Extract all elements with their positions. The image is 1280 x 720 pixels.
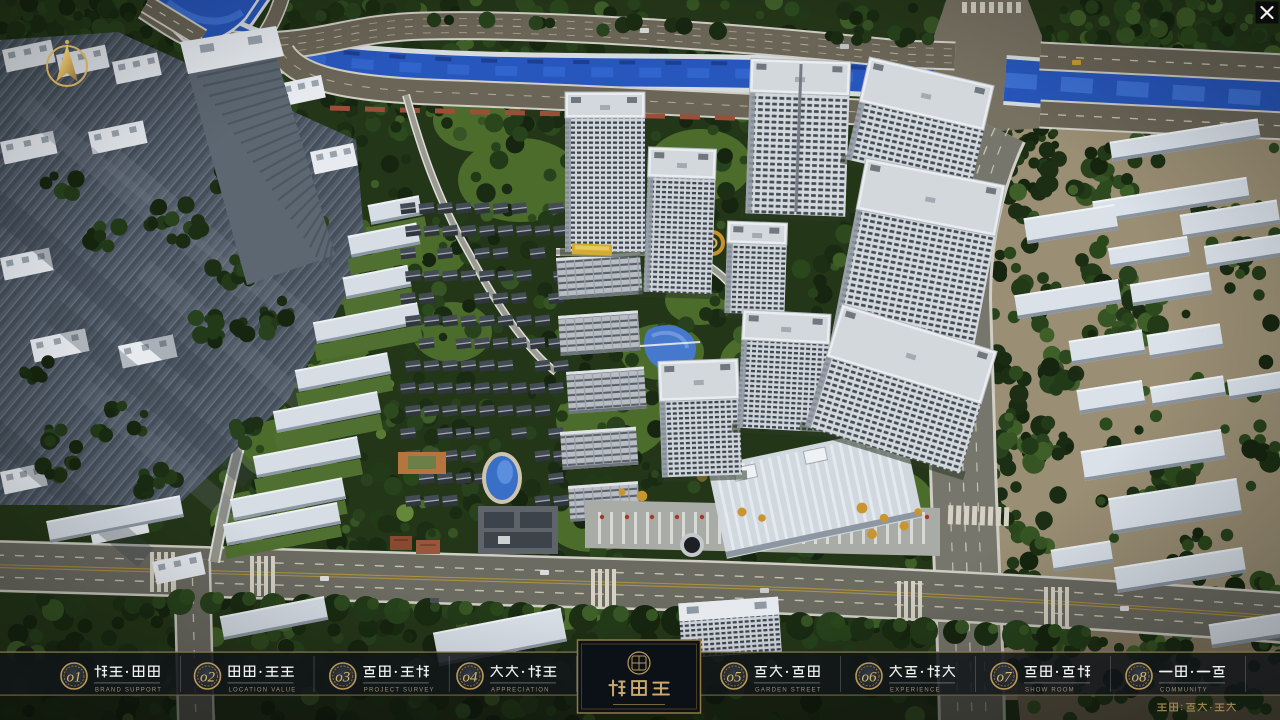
svg-text:BRAND SUPPORT: BRAND SUPPORT bbox=[95, 688, 162, 694]
svg-text:o3: o3 bbox=[335, 670, 350, 686]
svg-text:GARDEN STREET: GARDEN STREET bbox=[755, 688, 822, 694]
svg-text:APPRECIATION: APPRECIATION bbox=[491, 688, 550, 694]
svg-text:SHOW ROOM: SHOW ROOM bbox=[1025, 688, 1075, 694]
svg-text:o5: o5 bbox=[727, 670, 743, 686]
svg-text:o4: o4 bbox=[463, 670, 479, 686]
svg-text:o6: o6 bbox=[862, 670, 878, 686]
svg-text:o8: o8 bbox=[1132, 670, 1148, 686]
svg-text:EXPERIENCE: EXPERIENCE bbox=[890, 688, 941, 694]
svg-text:LOCATION VALUE: LOCATION VALUE bbox=[229, 688, 297, 694]
svg-text:PROJECT SURVEY: PROJECT SURVEY bbox=[364, 688, 435, 694]
svg-text:o1: o1 bbox=[67, 670, 82, 686]
svg-text:o2: o2 bbox=[200, 670, 216, 686]
svg-text:o7: o7 bbox=[997, 670, 1014, 686]
svg-text:COMMUNITY: COMMUNITY bbox=[1160, 688, 1208, 694]
